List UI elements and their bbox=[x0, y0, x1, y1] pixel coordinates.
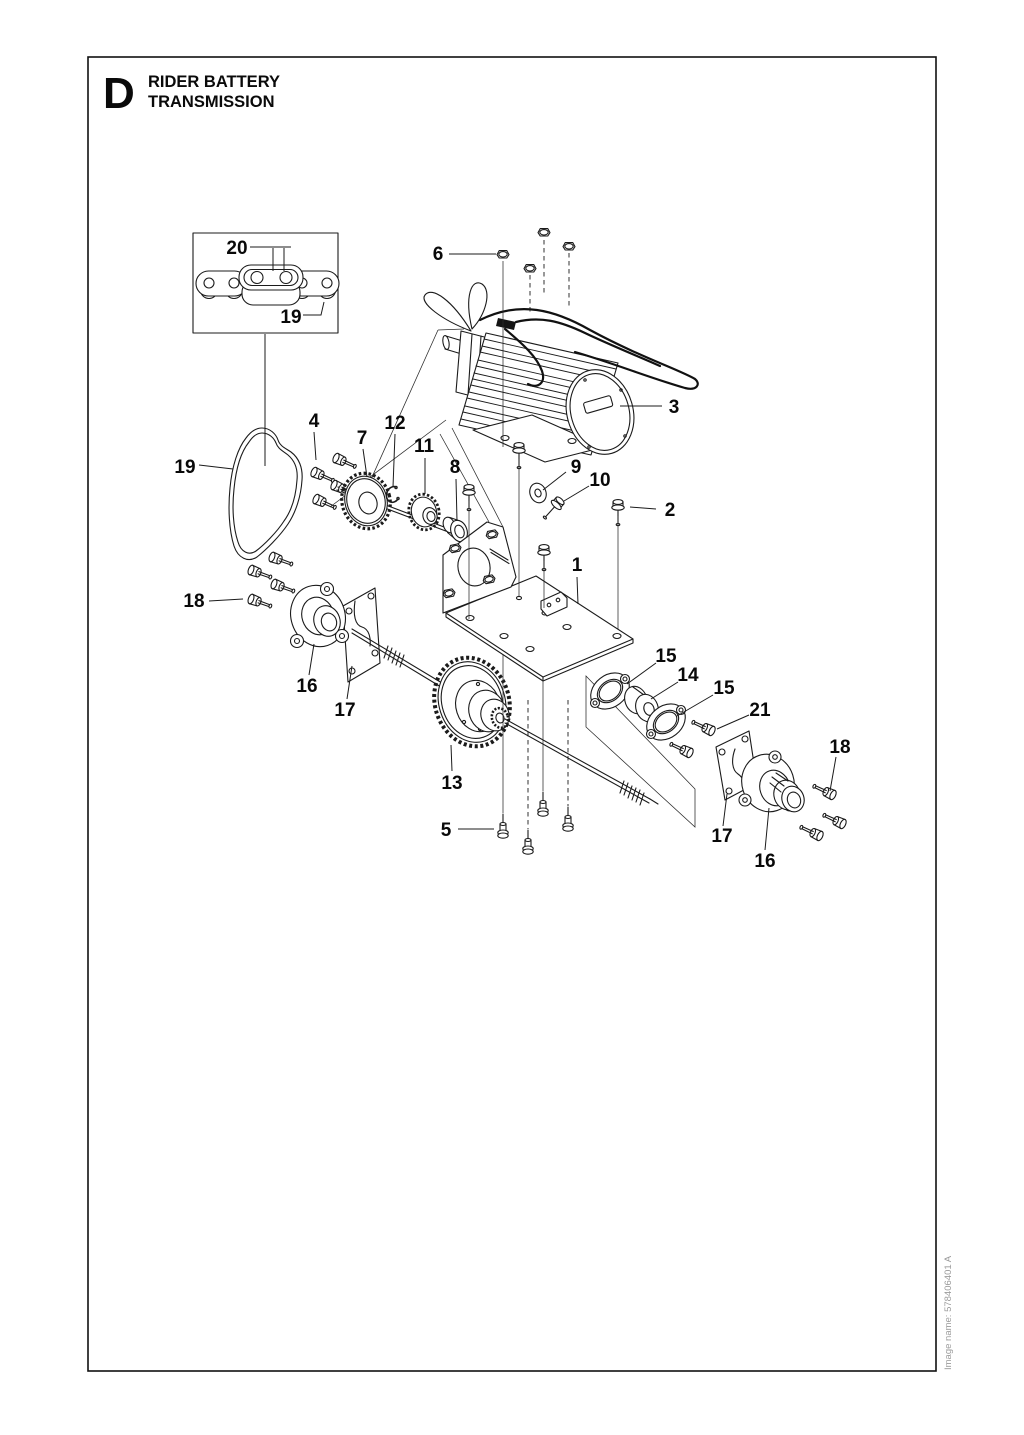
bolt-5 bbox=[498, 814, 508, 838]
callout-1: 1 bbox=[572, 555, 583, 576]
leader-19-inset bbox=[303, 302, 324, 315]
callout-14: 14 bbox=[677, 665, 699, 686]
leader-1 bbox=[577, 577, 578, 604]
callout-18-left: 18 bbox=[183, 591, 204, 612]
sprocket-large-7 bbox=[336, 468, 397, 535]
right-hub-group: 17 16 18 bbox=[711, 731, 850, 872]
leader-18-right bbox=[830, 757, 836, 791]
section-letter: D bbox=[103, 69, 135, 118]
sprocket-small-11 bbox=[405, 491, 443, 534]
image-name-text: Image name: 578406401 A bbox=[943, 1255, 954, 1370]
callout-15-b: 15 bbox=[713, 678, 735, 699]
bolt-5 bbox=[523, 830, 533, 854]
callout-13: 13 bbox=[441, 773, 462, 794]
leader-10 bbox=[564, 486, 589, 501]
callout-16-left: 16 bbox=[296, 676, 317, 697]
leader-12 bbox=[393, 434, 395, 487]
leader-16-right bbox=[765, 808, 769, 850]
callout-21: 21 bbox=[749, 700, 771, 721]
leader-9 bbox=[543, 472, 566, 490]
bolt-18 bbox=[247, 593, 273, 611]
drive-belt: 19 bbox=[174, 428, 302, 560]
leader-16-left bbox=[309, 644, 314, 675]
callout-19-belt: 19 bbox=[174, 457, 195, 478]
callout-2: 2 bbox=[665, 500, 676, 521]
bolt-18 bbox=[811, 781, 837, 800]
leader-14 bbox=[651, 682, 678, 699]
callout-3: 3 bbox=[669, 397, 680, 418]
axle-shaft bbox=[505, 719, 650, 803]
callout-17-right: 17 bbox=[711, 826, 732, 847]
parts-manual-page: D RIDER BATTERY TRANSMISSION Image name:… bbox=[0, 0, 1024, 1435]
callout-5: 5 bbox=[441, 820, 452, 841]
leader-15-a bbox=[627, 663, 656, 684]
callout-10: 10 bbox=[589, 470, 610, 491]
bolt-5 bbox=[563, 807, 573, 831]
bolt-21 bbox=[690, 717, 716, 736]
callout-20: 20 bbox=[226, 238, 247, 259]
callout-18-right: 18 bbox=[829, 737, 850, 758]
bolt-4 bbox=[332, 452, 358, 471]
washer-9 bbox=[527, 481, 549, 505]
callout-7: 7 bbox=[357, 428, 368, 449]
callout-9: 9 bbox=[571, 457, 582, 478]
left-hub-group: 18 16 17 bbox=[183, 551, 447, 721]
leader-19-belt bbox=[199, 465, 233, 469]
callout-6: 6 bbox=[433, 244, 444, 265]
callout-4: 4 bbox=[309, 411, 320, 432]
bolt-18 bbox=[247, 564, 273, 582]
page-title-line1: RIDER BATTERY bbox=[148, 73, 280, 91]
page-title-line2: TRANSMISSION bbox=[148, 93, 275, 111]
electric-motor: 6 3 bbox=[424, 229, 698, 463]
callout-11: 11 bbox=[414, 436, 435, 457]
callout-8: 8 bbox=[450, 457, 461, 478]
bolt-18 bbox=[798, 822, 824, 841]
leader-2 bbox=[630, 507, 656, 509]
leader-21 bbox=[717, 715, 749, 729]
chain-detail bbox=[196, 265, 339, 305]
callout-15-a: 15 bbox=[655, 646, 677, 667]
callout-12: 12 bbox=[384, 413, 405, 434]
leader-13 bbox=[451, 745, 452, 771]
bolt-18 bbox=[821, 810, 847, 829]
bolt-18 bbox=[270, 578, 296, 596]
callout-17-left: 17 bbox=[334, 700, 355, 721]
page-border bbox=[88, 57, 936, 1371]
exploded-diagram: D RIDER BATTERY TRANSMISSION Image name:… bbox=[0, 0, 1024, 1435]
leader-8 bbox=[456, 479, 457, 521]
bolt-18 bbox=[268, 551, 294, 569]
callout-19-inset: 19 bbox=[280, 307, 301, 328]
bolt-4 bbox=[312, 493, 338, 512]
bolt-21 bbox=[668, 739, 694, 758]
bolt-5 bbox=[538, 792, 548, 816]
leader-4 bbox=[314, 432, 316, 460]
input-shaft-group: 4 7 12 11 8 bbox=[309, 411, 471, 544]
callout-16-right: 16 bbox=[754, 851, 775, 872]
leader-18-left bbox=[209, 599, 243, 601]
